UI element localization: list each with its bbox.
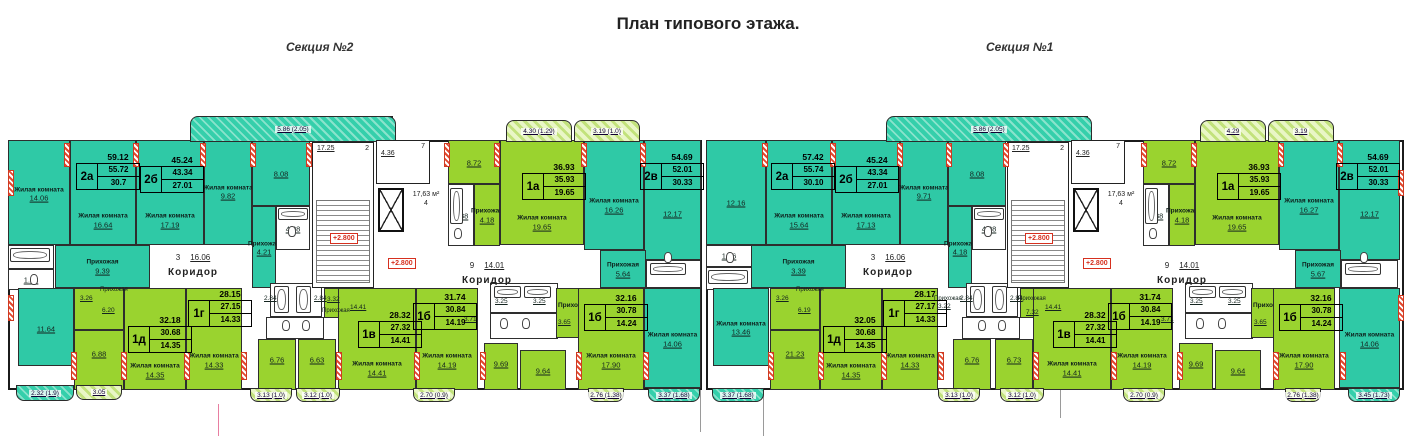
toilet-icon: [664, 252, 672, 263]
apartment-stamp-box: 1б30.7814.24: [1279, 304, 1343, 331]
room-label: Жилая комната14.41: [1034, 361, 1110, 378]
apartment-total-area: 28.17: [883, 289, 947, 300]
room-label: Жилая комната14.33: [187, 353, 241, 370]
lobby-number: 4: [1099, 199, 1143, 208]
balcony: 3.12 (1.0): [296, 388, 340, 402]
room-area: 9.39: [95, 267, 110, 276]
axis-line: [763, 394, 764, 436]
bathtub-icon: [450, 188, 463, 224]
toilet-icon: [522, 318, 530, 329]
room-area: 17.90: [602, 360, 621, 369]
balcony-area: 2.32 (1.9): [29, 390, 61, 397]
small-area-label: 6.20: [102, 307, 115, 314]
apartment-stamp: 31.741б30.8414.19: [1108, 292, 1172, 330]
corridor-number: 9: [1165, 261, 1169, 270]
room-label: Жилая комната9.71: [901, 184, 947, 201]
room-area: 4.18: [1175, 216, 1190, 225]
vestibule-area: 4.36: [1076, 150, 1120, 157]
room-name: Жилая комната: [1212, 215, 1261, 223]
toilet-icon: [454, 228, 462, 239]
apartment-stamp: 45.242б43.3427.01: [140, 155, 204, 193]
room: Жилая комната16.26: [584, 140, 644, 250]
room: 21.23: [770, 330, 820, 390]
apartment-living-area: 27.17: [905, 301, 946, 314]
room: Жилая комната9.82: [204, 140, 252, 245]
lobby-area: 17,63 м²: [1099, 190, 1143, 199]
wall-vent-hatch: [121, 352, 127, 380]
balcony: 2.70 (0.9): [1123, 388, 1165, 402]
room: 8.08: [252, 140, 310, 206]
room-name: Жилая комната: [189, 353, 238, 361]
small-area-label: 3.25: [495, 298, 508, 305]
apartment-total-area: 59.12: [76, 152, 140, 163]
bathtub-icon: [1145, 188, 1158, 224]
room-label: 12.16: [707, 198, 765, 207]
room-label: Жилая комната17.19: [137, 213, 203, 230]
wall-vent-hatch: [1191, 143, 1197, 167]
apartment-living-area: 30.84: [435, 304, 476, 317]
room-label: 8.72: [449, 158, 499, 167]
apartment-total-area: 54.69: [640, 152, 704, 163]
small-area-label: 3.32: [327, 296, 340, 303]
apartment-label: 1а: [523, 174, 544, 199]
apartment-stamp-box: 2а55.7430.10: [771, 163, 835, 190]
room-name: Жилая комната: [774, 213, 823, 221]
room-label: Жилая комната14.35: [125, 363, 185, 380]
corridor-area: 16.06: [190, 253, 210, 262]
axis-line: [700, 390, 701, 432]
apartment-label: 1б: [414, 304, 435, 329]
wall-vent-hatch: [1340, 352, 1346, 380]
bathtub-icon: [494, 286, 521, 298]
stair-flight-number: 2: [1060, 145, 1064, 152]
balcony-area: 2.76 (1.38): [588, 392, 623, 399]
apartment-living-area: 43.34: [857, 167, 898, 180]
balcony-area: 3.12 (1.0): [1006, 392, 1038, 399]
corridor-area: 16.06: [885, 253, 905, 262]
wall-vent-hatch: [643, 352, 649, 380]
apartment-stamp: 36.931а35.9319.65: [522, 162, 586, 200]
balcony: 3.19: [1268, 120, 1334, 142]
small-area-label: 3.65: [1254, 319, 1267, 326]
balcony: 2.76 (1.38): [1285, 388, 1321, 402]
bathtub-icon: [10, 248, 50, 262]
room-area: 16.64: [94, 221, 113, 230]
apartment-values: 30.7814.24: [1301, 305, 1342, 330]
apartment-total-area: 54.69: [1336, 152, 1400, 163]
elevator-lobby-label: 17,63 м²4: [404, 190, 448, 209]
balcony: 2.32 (1.9): [16, 385, 74, 401]
bathtub-icon: [296, 286, 311, 313]
apartment-stamp: 54.692в52.0130.33: [1336, 152, 1400, 190]
room-name: Жилая комната: [1117, 353, 1166, 361]
apartment-living-area: 30.78: [1301, 305, 1342, 318]
balcony: 3.19 (1.0): [574, 120, 640, 142]
apartment-total-area: 36.93: [522, 162, 586, 173]
room-label: Жилая комната14.06: [645, 332, 700, 349]
apartment-values: 30.8414.19: [435, 304, 476, 329]
room: Прихожая4.21: [252, 206, 276, 288]
toilet-icon: [500, 318, 508, 329]
room: Жилая комната9.71: [900, 140, 948, 245]
room: Жилая комната14.06: [644, 288, 701, 388]
balcony-area: 3.12 (1.0): [302, 392, 334, 399]
room: Прихожая4.18: [474, 184, 500, 246]
level-mark: +2.800: [1025, 233, 1053, 244]
apartment-stamp: 57.422а55.7430.10: [771, 152, 835, 190]
apartment-total-area: 32.18: [128, 315, 192, 326]
room-area: 6.76: [965, 355, 980, 364]
apartment-living-area: 30.68: [845, 327, 886, 340]
room-area: 12.17: [1360, 210, 1379, 219]
room-area: 9.64: [1231, 366, 1246, 375]
room-area: 15.64: [790, 221, 809, 230]
room: 6.88: [74, 330, 124, 390]
apartment-total-area: 32.16: [1279, 293, 1343, 304]
room-area: 4.18: [480, 216, 495, 225]
apartment-label: 1д: [824, 327, 845, 352]
apartment-stamp: 32.161б30.7814.24: [1279, 293, 1343, 331]
small-area-label: 3.26: [776, 295, 789, 302]
apartment-living-area: 30.68: [150, 327, 191, 340]
balcony-area: 3.19 (1.0): [591, 128, 623, 135]
room-label: 9.69: [485, 360, 517, 369]
room-area: 5.67: [1311, 269, 1326, 278]
apartment-label: 1в: [1054, 322, 1075, 347]
room: 8.72: [1143, 140, 1195, 184]
room-name: Жилая комната: [422, 353, 471, 361]
room-label: 8.72: [1144, 158, 1194, 167]
room-label: Прихожая3.39: [752, 259, 845, 276]
small-area-label: 2.84: [960, 295, 973, 302]
room: 9.69: [484, 343, 518, 390]
stair-flight-area: 17.25: [317, 145, 335, 152]
room-label: Жилая комната16.64: [71, 213, 135, 230]
room-name: Прихожая: [782, 259, 814, 267]
elevator-lobby-label: 17,63 м²4: [1099, 190, 1143, 209]
bathtub-icon: [650, 263, 686, 275]
room-name: Жилая комната: [78, 213, 127, 221]
apartment-label: 1д: [129, 327, 150, 352]
room-label: 12.17: [645, 210, 700, 219]
wall-vent-hatch: [1398, 295, 1404, 321]
room: 9.64: [520, 350, 566, 390]
toilet-icon: [30, 274, 38, 285]
balcony: 3.12 (1.0): [1000, 388, 1044, 402]
room-area: 6.88: [92, 350, 107, 359]
room-area: 14.33: [901, 360, 920, 369]
room-label: Жилая комната14.33: [883, 353, 937, 370]
balcony: 3.37 (1.68): [648, 388, 700, 402]
apartment-room-area: 14.41: [1075, 335, 1116, 347]
apartment-stamp-box: 2б43.3427.01: [140, 166, 204, 193]
apartment-label: 2б: [836, 167, 857, 192]
stair-flight-number: 2: [365, 145, 369, 152]
room-name: Жилая комната: [826, 363, 875, 371]
room-label: Прихожая4.18: [1170, 208, 1194, 225]
corridor-area: 14.01: [484, 261, 504, 270]
room-area: 14.19: [438, 360, 457, 369]
wall-vent-hatch: [938, 352, 944, 380]
toilet-icon: [288, 226, 296, 237]
apartment-total-area: 45.24: [835, 155, 899, 166]
room-label: Жилая комната19.65: [501, 215, 583, 232]
room-label: 6.88: [75, 350, 123, 359]
corridor-number: 3: [871, 253, 875, 262]
toilet-icon: [1149, 228, 1157, 239]
corridor-name: Коридор: [1157, 275, 1207, 286]
room-name: Прихожая: [1166, 208, 1198, 216]
room-name: Жилая комната: [1345, 332, 1394, 340]
apartment-living-area: 55.74: [793, 164, 834, 177]
wall-vent-hatch: [250, 143, 256, 167]
apartment-values: 43.3427.01: [857, 167, 898, 192]
toilet-icon: [1218, 318, 1226, 329]
room-area: 8.72: [467, 158, 482, 167]
floor-plan-canvas: План типового этажа. Секция №2 Секция №1…: [0, 0, 1416, 436]
room-name: Жилая комната: [14, 186, 63, 194]
apartment-stamp: 45.242б43.3427.01: [835, 155, 899, 193]
balcony-area: 2.70 (0.9): [1128, 392, 1160, 399]
apartment-values: 52.0130.33: [1358, 164, 1399, 189]
apartment-label: 1б: [585, 305, 606, 330]
room-area: 19.65: [1228, 223, 1247, 232]
apartment-room-area: 30.7: [98, 177, 139, 189]
apartment-room-area: 30.10: [793, 177, 834, 189]
apartment-label: 1в: [359, 322, 380, 347]
apartment-stamp: 31.741б30.8414.19: [413, 292, 477, 330]
apartment-room-area: 14.33: [905, 314, 946, 326]
balcony: 5.86 (2.05): [886, 116, 1092, 142]
balcony-area: 5.86 (2.05): [275, 126, 310, 133]
balcony-area: 3.19: [1293, 128, 1310, 135]
apartment-stamp: 36.931а35.9319.65: [1217, 162, 1281, 200]
apartment-total-area: 36.93: [1217, 162, 1281, 173]
room-name: Жилая комната: [130, 363, 179, 371]
room-label: Прихожая4.18: [949, 240, 971, 257]
apartment-room-area: 14.41: [380, 335, 421, 347]
room-area: 8.08: [970, 170, 985, 179]
bathtub-icon: [524, 286, 551, 298]
bathtub-icon: [1345, 263, 1381, 275]
toilet-icon: [1360, 252, 1368, 263]
apartment-values: 55.7230.7: [98, 164, 139, 189]
room-area: 5.64: [616, 269, 631, 278]
room: Жилая комната16.27: [1279, 140, 1339, 250]
balcony-area: 5.86 (2.05): [971, 126, 1006, 133]
wall-vent-hatch: [480, 352, 486, 380]
vestibule-number: 7: [1076, 143, 1120, 150]
room-area: 9.71: [917, 192, 932, 201]
room-name: Жилая комната: [716, 320, 765, 328]
bathtub-icon: [1219, 286, 1246, 298]
room-label: Жилая комната14.06: [9, 186, 69, 203]
apartment-stamp: 28.171г27.1714.33: [883, 289, 947, 327]
room: Жилая комната14.06: [8, 140, 70, 245]
wall-vent-hatch: [444, 143, 450, 167]
room-area: 8.72: [1162, 158, 1177, 167]
apartment-values: 30.6814.35: [150, 327, 191, 352]
corridor-label: 914.01Коридор: [1157, 255, 1207, 286]
toilet-icon: [282, 320, 290, 331]
room-label: Жилая комната16.27: [1280, 197, 1338, 214]
room-label: Жилая комната14.19: [1112, 353, 1172, 370]
room: 6.63: [298, 339, 336, 390]
elevator: [378, 188, 404, 232]
room-area: 9.64: [536, 366, 551, 375]
apartment-room-area: 14.19: [1130, 317, 1171, 329]
stair-vestibule: 74.36: [1071, 140, 1125, 184]
wall-vent-hatch: [184, 352, 190, 380]
elevator: [1073, 188, 1099, 232]
room-label: Жилая комната14.35: [821, 363, 881, 380]
lobby-area: 17,63 м²: [404, 190, 448, 199]
wall-vent-hatch: [946, 143, 952, 167]
balcony-area: 2.70 (0.9): [418, 392, 450, 399]
apartment-living-area: 52.01: [662, 164, 703, 177]
apartment-stamp: 54.692в52.0130.33: [640, 152, 704, 190]
room-name: Прихожая: [86, 259, 118, 267]
apartment-total-area: 28.15: [188, 289, 252, 300]
apartment-values: 35.9319.65: [544, 174, 585, 199]
balcony-area: 3.37 (1.68): [656, 392, 691, 399]
apartment-stamp-box: 2а55.7230.7: [76, 163, 140, 190]
room-name: Жилая комната: [1279, 353, 1328, 361]
wall-vent-hatch: [1273, 352, 1279, 380]
apartment-values: 52.0130.33: [662, 164, 703, 189]
room-label: Жилая комната17.13: [833, 213, 899, 230]
small-area-label: 2.84: [314, 295, 327, 302]
axis-line: [1060, 390, 1061, 418]
balcony-area: 3.13 (1.0): [943, 392, 975, 399]
room-area: 14.35: [146, 370, 165, 379]
apartment-values: 30.8414.19: [1130, 304, 1171, 329]
room-name: Жилая комната: [1284, 197, 1333, 205]
apartment-values: 35.9319.65: [1239, 174, 1280, 199]
room: Прихожая4.18: [1169, 184, 1195, 246]
room-area: 14.41: [1063, 368, 1082, 377]
lobby-number: 4: [404, 199, 448, 208]
balcony: 3.37 (1.68): [712, 388, 764, 402]
room-area: 6.76: [270, 355, 285, 364]
apartment-label: 2в: [1337, 164, 1358, 189]
room-area: 14.33: [205, 360, 224, 369]
room-area: 6.73: [1007, 355, 1022, 364]
wall-vent-hatch: [64, 143, 70, 167]
room-label: 9.69: [1180, 360, 1212, 369]
wall-vent-hatch: [8, 295, 14, 321]
balcony: 3.45 (1.73): [1348, 388, 1400, 402]
apartment-total-area: 32.05: [823, 315, 887, 326]
small-room-name: Прихожая: [100, 287, 128, 293]
room-label: 12.17: [1340, 210, 1399, 219]
room-name: Прихожая: [1302, 261, 1334, 269]
room-area: 4.21: [257, 248, 272, 257]
room-label: 8.08: [949, 170, 1005, 179]
bathtub-icon: [1189, 286, 1216, 298]
room-label: 9.64: [1216, 366, 1260, 375]
room-area: 14.41: [368, 368, 387, 377]
corridor-label: 914.01Коридор: [462, 255, 512, 286]
room: 9.69: [1179, 343, 1213, 390]
room-area: 11.64: [37, 324, 55, 333]
apartment-values: 30.7814.24: [606, 305, 647, 330]
apartment-room-area: 14.24: [606, 318, 647, 330]
balcony: 3.13 (1.0): [938, 388, 980, 402]
small-area-label: 2.84: [264, 295, 277, 302]
axis-line: [218, 404, 219, 436]
room-area: 21.23: [786, 350, 805, 359]
room-name: Прихожая: [607, 261, 639, 269]
toilet-icon: [1196, 318, 1204, 329]
room-area: 4.18: [953, 248, 968, 257]
room-label: Жилая комната15.64: [767, 213, 831, 230]
room-name: Жилая комната: [648, 332, 697, 340]
apartment-room-area: 14.35: [150, 340, 191, 352]
balcony: 4.29: [1200, 120, 1266, 142]
apartment-room-area: 14.19: [435, 317, 476, 329]
room-area: 3.39: [791, 267, 806, 276]
apartment-label: 1а: [1218, 174, 1239, 199]
apartment-stamp-box: 1а35.9319.65: [1217, 173, 1281, 200]
apartment-total-area: 45.24: [140, 155, 204, 166]
room: 6.76: [953, 339, 991, 390]
room-area: 17.90: [1295, 360, 1314, 369]
room-area: 14.19: [1133, 360, 1152, 369]
apartment-label: 2в: [641, 164, 662, 189]
vestibule-number: 7: [381, 143, 425, 150]
apartment-total-area: 31.74: [413, 292, 477, 303]
corridor-name: Коридор: [863, 267, 913, 278]
room-name: Жилая комната: [586, 353, 635, 361]
level-mark: +2.800: [388, 258, 416, 269]
room-area: 19.65: [533, 223, 552, 232]
room-area: 9.69: [1189, 360, 1204, 369]
apartment-stamp-box: 1г27.1514.33: [188, 300, 252, 327]
apartment-stamp-box: 1а35.9319.65: [522, 173, 586, 200]
room-label: Жилая комната14.06: [1340, 332, 1399, 349]
apartment-living-area: 30.84: [1130, 304, 1171, 317]
apartment-label: 2а: [772, 164, 793, 189]
balcony-area: 4.29: [1225, 128, 1242, 135]
apartment-total-area: 57.42: [771, 152, 835, 163]
apartment-stamp-box: 2в52.0130.33: [640, 163, 704, 190]
floor-plan: Жилая комната14.06Жилая комната16.64Жила…: [0, 0, 1416, 436]
wall-vent-hatch: [1033, 352, 1039, 380]
room-name: Прихожая: [471, 208, 503, 216]
room-name: Жилая комната: [841, 213, 890, 221]
room-label: 6.76: [954, 355, 990, 364]
corridor-area: 14.01: [1179, 261, 1199, 270]
small-room-name: Прихожая: [322, 308, 350, 314]
corridor-name: Коридор: [462, 275, 512, 286]
apartment-living-area: 35.93: [544, 174, 585, 187]
room-area: 9.82: [221, 192, 236, 201]
room-name: Жилая комната: [1047, 361, 1096, 369]
wall-vent-hatch: [768, 352, 774, 380]
apartment-room-area: 30.33: [662, 177, 703, 189]
staircase: 17.252: [1007, 142, 1069, 288]
corridor-label: 316.06Коридор: [863, 247, 913, 278]
apartment-label: 1б: [1109, 304, 1130, 329]
wall-vent-hatch: [1141, 143, 1147, 167]
room-label: Прихожая9.39: [56, 259, 149, 276]
room-name: Жилая комната: [517, 215, 566, 223]
bathtub-icon: [708, 270, 748, 284]
wall-vent-hatch: [881, 352, 887, 380]
room: Жилая комната14.06: [1339, 288, 1400, 388]
wall-vent-hatch: [336, 352, 342, 380]
